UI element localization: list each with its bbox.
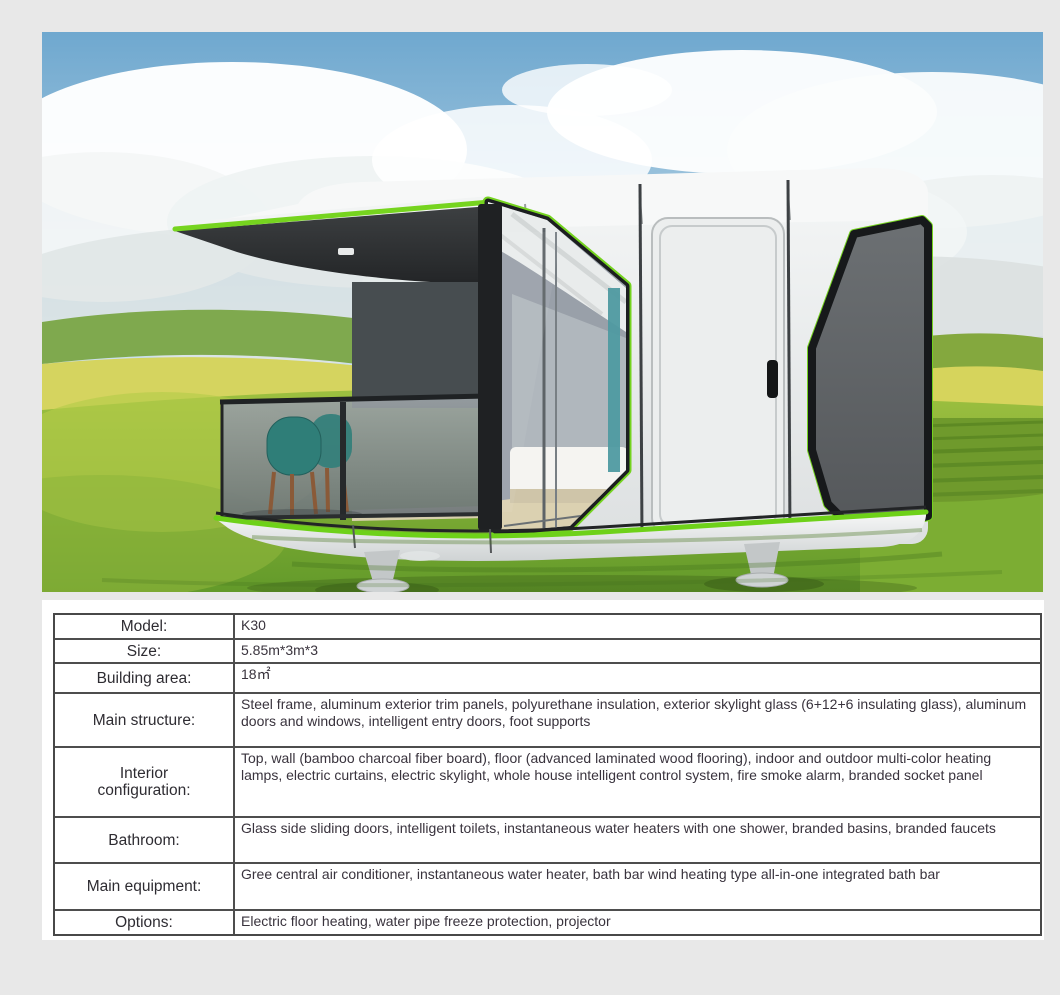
table-row: Interior configuration: Top, wall (bambo… <box>55 746 1040 816</box>
spec-value: Electric floor heating, water pipe freez… <box>235 911 1040 934</box>
table-row: Bathroom: Glass side sliding doors, inte… <box>55 816 1040 862</box>
spec-label: Size: <box>55 640 235 662</box>
module-seam <box>640 184 642 540</box>
capsule-house-illustration <box>42 32 1043 592</box>
interior-teal-accent <box>608 288 620 472</box>
canopy-light <box>338 248 354 255</box>
table-row: Options: Electric floor heating, water p… <box>55 909 1040 934</box>
table-row: Main equipment: Gree central air conditi… <box>55 862 1040 909</box>
spec-label: Main equipment: <box>55 864 235 909</box>
spec-label: Options: <box>55 911 235 934</box>
deck-glass-railing <box>222 398 485 520</box>
spec-value: Gree central air conditioner, instantane… <box>235 864 1040 909</box>
spec-value: Top, wall (bamboo charcoal fiber board),… <box>235 748 1040 816</box>
spec-label: Model: <box>55 615 235 638</box>
spec-value: Steel frame, aluminum exterior trim pane… <box>235 694 1040 746</box>
spec-value: 18㎡ <box>235 664 1040 692</box>
spec-value: K30 <box>235 615 1040 638</box>
spec-label: Bathroom: <box>55 818 235 862</box>
spec-label: Main structure: <box>55 694 235 746</box>
spec-label: Interior configuration: <box>55 748 235 816</box>
window-left-frame-bar <box>478 204 502 530</box>
table-row: Model: K30 <box>55 615 1040 638</box>
spec-panel: Model: K30 Size: 5.85m*3m*3 Building are… <box>42 600 1044 940</box>
table-row: Main structure: Steel frame, aluminum ex… <box>55 692 1040 746</box>
table-row: Building area: 18㎡ <box>55 662 1040 692</box>
table-row: Size: 5.85m*3m*3 <box>55 638 1040 662</box>
module-seam <box>788 180 790 537</box>
spec-value: 5.85m*3m*3 <box>235 640 1040 662</box>
spec-table: Model: K30 Size: 5.85m*3m*3 Building are… <box>53 613 1042 936</box>
entry-door <box>640 180 790 540</box>
spec-value: Glass side sliding doors, intelligent to… <box>235 818 1040 862</box>
door-handle <box>767 360 778 398</box>
product-photo <box>42 32 1043 592</box>
spec-label: Building area: <box>55 664 235 692</box>
door-panel <box>652 218 784 534</box>
